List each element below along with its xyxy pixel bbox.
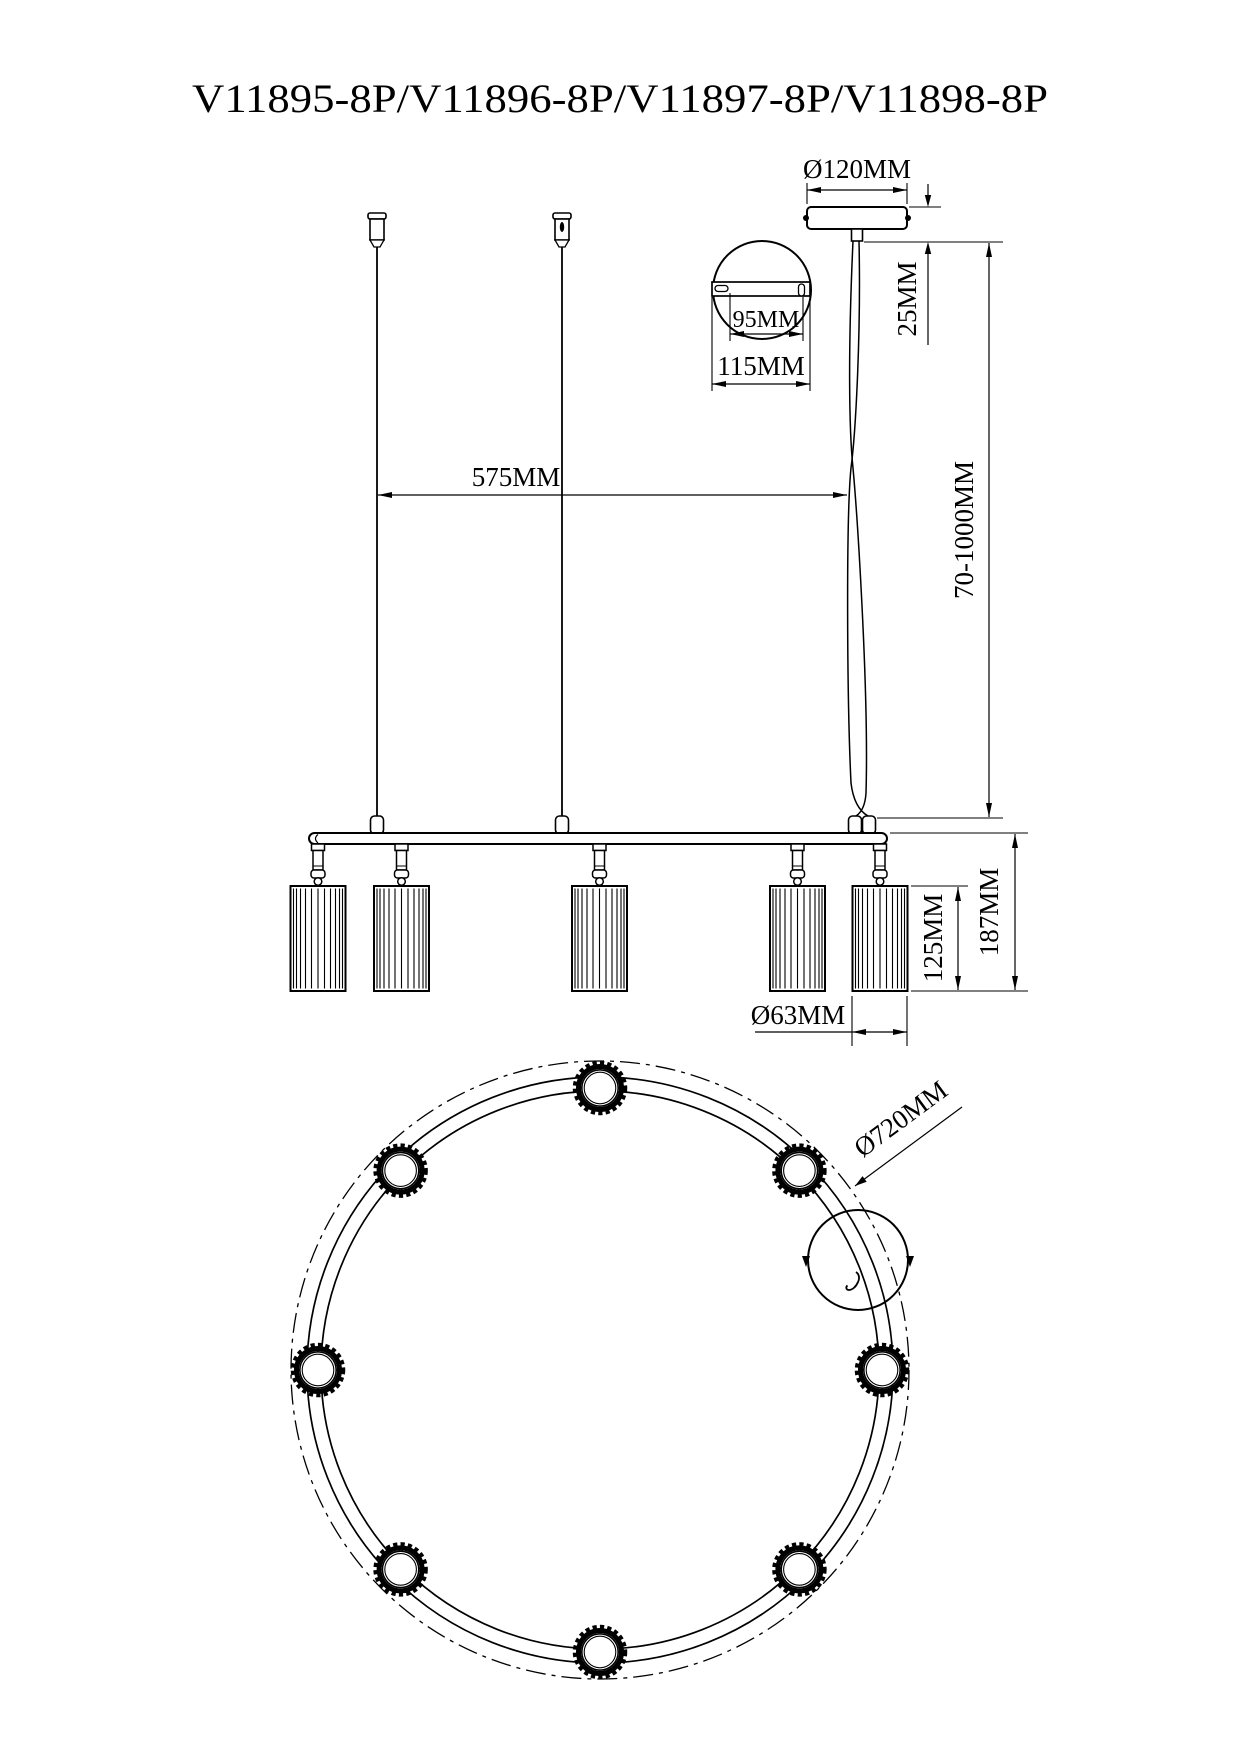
shade-top-gear-part: [302, 1354, 334, 1386]
dim-ring-diameter: Ø720MM: [848, 1075, 953, 1163]
lamp-ball-joint: [876, 878, 884, 886]
lamp-stem: [793, 851, 803, 871]
plan-shade-top-w: [294, 1346, 343, 1395]
shade-top-gear-part: [866, 1354, 898, 1386]
plan-shade-top-se: [775, 1545, 824, 1594]
lamp-collar: [312, 844, 325, 851]
dim-suspension-spread: 575MM: [472, 462, 561, 492]
lamp-ball-joint: [314, 878, 322, 886]
lamp-swivel: [395, 870, 409, 878]
lamp-stem: [595, 851, 605, 871]
hanging-hook-glyph: [846, 1272, 859, 1290]
shade-top-gear-part: [784, 1554, 816, 1586]
lamp-stem: [875, 851, 885, 871]
lamp-assembly-5: [853, 844, 908, 991]
elevation-view: 95MM 115MM Ø120MM 25MM: [291, 154, 1029, 1046]
drawing-title: V11895-8P/V11896-8P/V11897-8P/V11898-8P: [192, 76, 1048, 121]
cable-gripper-top-left: [368, 213, 386, 247]
shade-top-gear-part: [385, 1155, 417, 1187]
keyhole-slot-right: [799, 284, 805, 296]
lamp-swivel: [791, 870, 805, 878]
lamp-swivel: [593, 870, 607, 878]
dim-shade-diameter: Ø63MM: [751, 1000, 846, 1030]
lamp-assembly-3: [572, 844, 627, 991]
dim-keyhole-spacing: 95MM: [733, 307, 800, 333]
lamp-swivel: [873, 870, 887, 878]
gripper-pin: [560, 222, 564, 232]
lamp-assembly-4: [770, 844, 825, 991]
dim-shade-height: 125MM: [918, 894, 948, 983]
ring-diameter-leader: Ø720MM: [848, 1075, 962, 1186]
shade-top-gear-part: [584, 1636, 616, 1668]
elevation-dimensions: Ø120MM 25MM 575MM 70-1000MM: [378, 154, 1028, 1046]
plan-shade-top-e: [858, 1346, 907, 1395]
plan-view: Ø720MM: [291, 1061, 962, 1679]
lamp-stem: [397, 851, 407, 871]
power-cable-a: [850, 241, 867, 816]
drawing-page: V11895-8P/V11896-8P/V11897-8P/V11898-8P: [0, 0, 1240, 1754]
lamp-stem: [313, 851, 323, 871]
dim-canopy-diameter: Ø120MM: [803, 154, 911, 184]
technical-drawing: V11895-8P/V11896-8P/V11897-8P/V11898-8P: [0, 0, 1240, 1754]
lamp-collar: [395, 844, 408, 851]
mounting-plate-detail: 95MM 115MM: [712, 241, 811, 391]
dim-cable-range: 70-1000MM: [949, 461, 979, 599]
keyhole-slot-left: [715, 286, 728, 292]
canopy-stem: [852, 229, 863, 241]
canopy-screw-left: [803, 215, 809, 221]
shade-top-gear-part: [784, 1155, 816, 1187]
cable-gripper-top-middle: [553, 213, 571, 247]
bar-cable-grippers: [371, 816, 876, 834]
plan-shade-top-s: [576, 1628, 625, 1677]
plan-shade-top-ne: [775, 1146, 824, 1195]
lamp-assembly-1: [291, 844, 346, 991]
lamp-collar: [593, 844, 606, 851]
lamp-ball-joint: [398, 878, 406, 886]
dim-canopy-height: 25MM: [892, 261, 922, 336]
dim-plate-width: 115MM: [717, 351, 805, 381]
plan-shade-top-sw: [376, 1545, 425, 1594]
shade-top-gear-part: [584, 1072, 616, 1104]
plan-shade-top-n: [576, 1064, 625, 1113]
lamp-assembly-2: [374, 844, 429, 991]
shade-top-gear-part: [385, 1554, 417, 1586]
lamp-ball-joint: [794, 878, 802, 886]
plan-canopy-detail: [802, 1210, 914, 1310]
fixture-bar: [309, 833, 887, 844]
lamp-collar: [791, 844, 804, 851]
dim-fixture-drop: 187MM: [974, 868, 1004, 957]
lamp-ball-joint: [596, 878, 604, 886]
plan-detail-circle: [808, 1210, 908, 1310]
lamp-swivel: [311, 870, 325, 878]
lamp-collar: [874, 844, 887, 851]
ceiling-canopy: [803, 207, 911, 241]
plan-shade-top-nw: [376, 1146, 425, 1195]
canopy-screw-right: [905, 215, 911, 221]
